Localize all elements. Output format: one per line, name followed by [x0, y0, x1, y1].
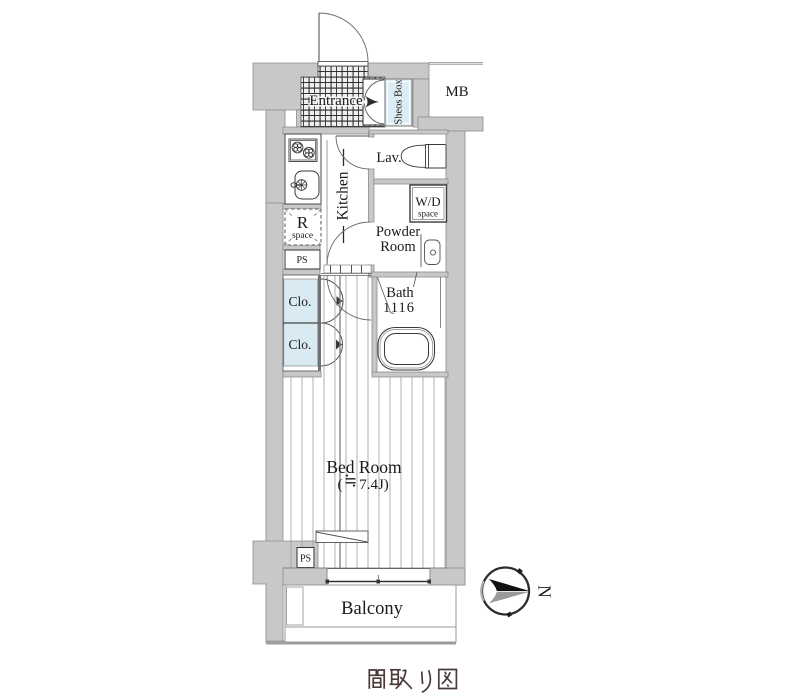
- svg-text:Bath: Bath: [386, 285, 414, 301]
- svg-text:Balcony: Balcony: [341, 599, 403, 619]
- svg-text:Lav.: Lav.: [376, 150, 401, 166]
- svg-text:(: (: [338, 477, 343, 493]
- svg-text:PS: PS: [300, 554, 311, 565]
- svg-text:Powder: Powder: [376, 224, 420, 240]
- svg-text:PS: PS: [296, 255, 307, 266]
- svg-text:Room: Room: [380, 239, 416, 255]
- svg-text:space: space: [418, 209, 438, 219]
- svg-text:R: R: [297, 213, 309, 232]
- svg-text:Clo.: Clo.: [289, 294, 312, 309]
- svg-text:Bed Room: Bed Room: [326, 457, 402, 477]
- svg-text:N: N: [534, 585, 554, 598]
- svg-text:1116: 1116: [383, 300, 415, 316]
- svg-text:W/D: W/D: [415, 194, 440, 209]
- svg-text:space: space: [292, 231, 313, 241]
- svg-text:Kitchen: Kitchen: [335, 171, 352, 220]
- svg-text:Sheos Box: Sheos Box: [393, 79, 404, 125]
- svg-text:Clo.: Clo.: [289, 337, 312, 352]
- svg-text:Entrance: Entrance: [309, 93, 363, 109]
- svg-text:7.4J): 7.4J): [359, 477, 389, 493]
- svg-text:MB: MB: [445, 84, 468, 100]
